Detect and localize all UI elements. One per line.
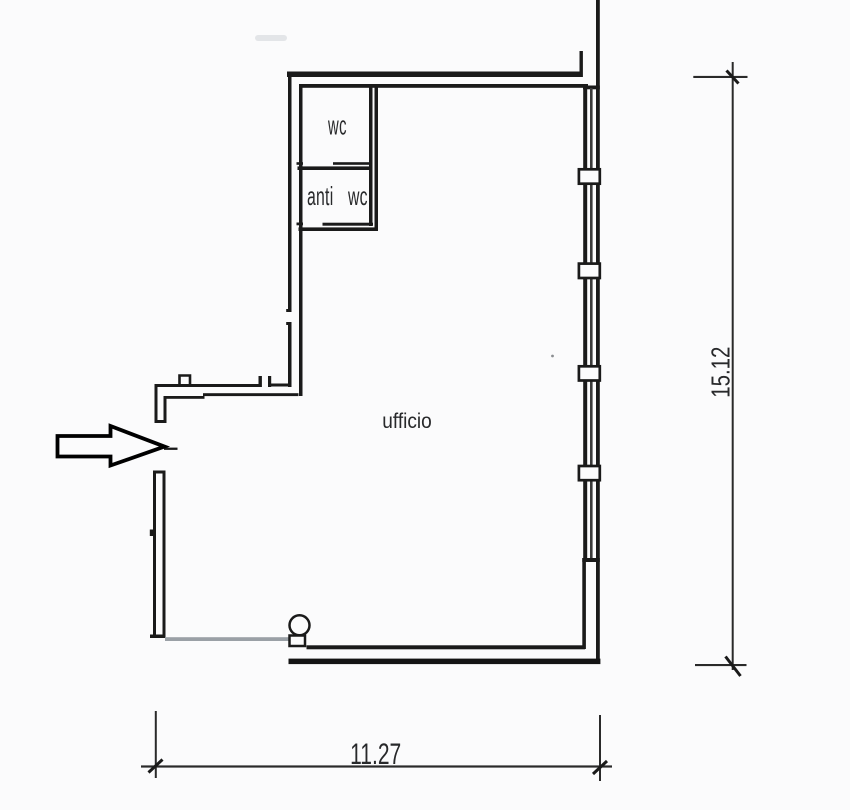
svg-text:ufficio: ufficio <box>382 410 431 433</box>
svg-text:15.12: 15.12 <box>706 347 735 398</box>
svg-text:wc: wc <box>327 112 347 140</box>
svg-text:anti wc: anti wc <box>307 183 368 211</box>
svg-text:11.27: 11.27 <box>350 739 401 771</box>
